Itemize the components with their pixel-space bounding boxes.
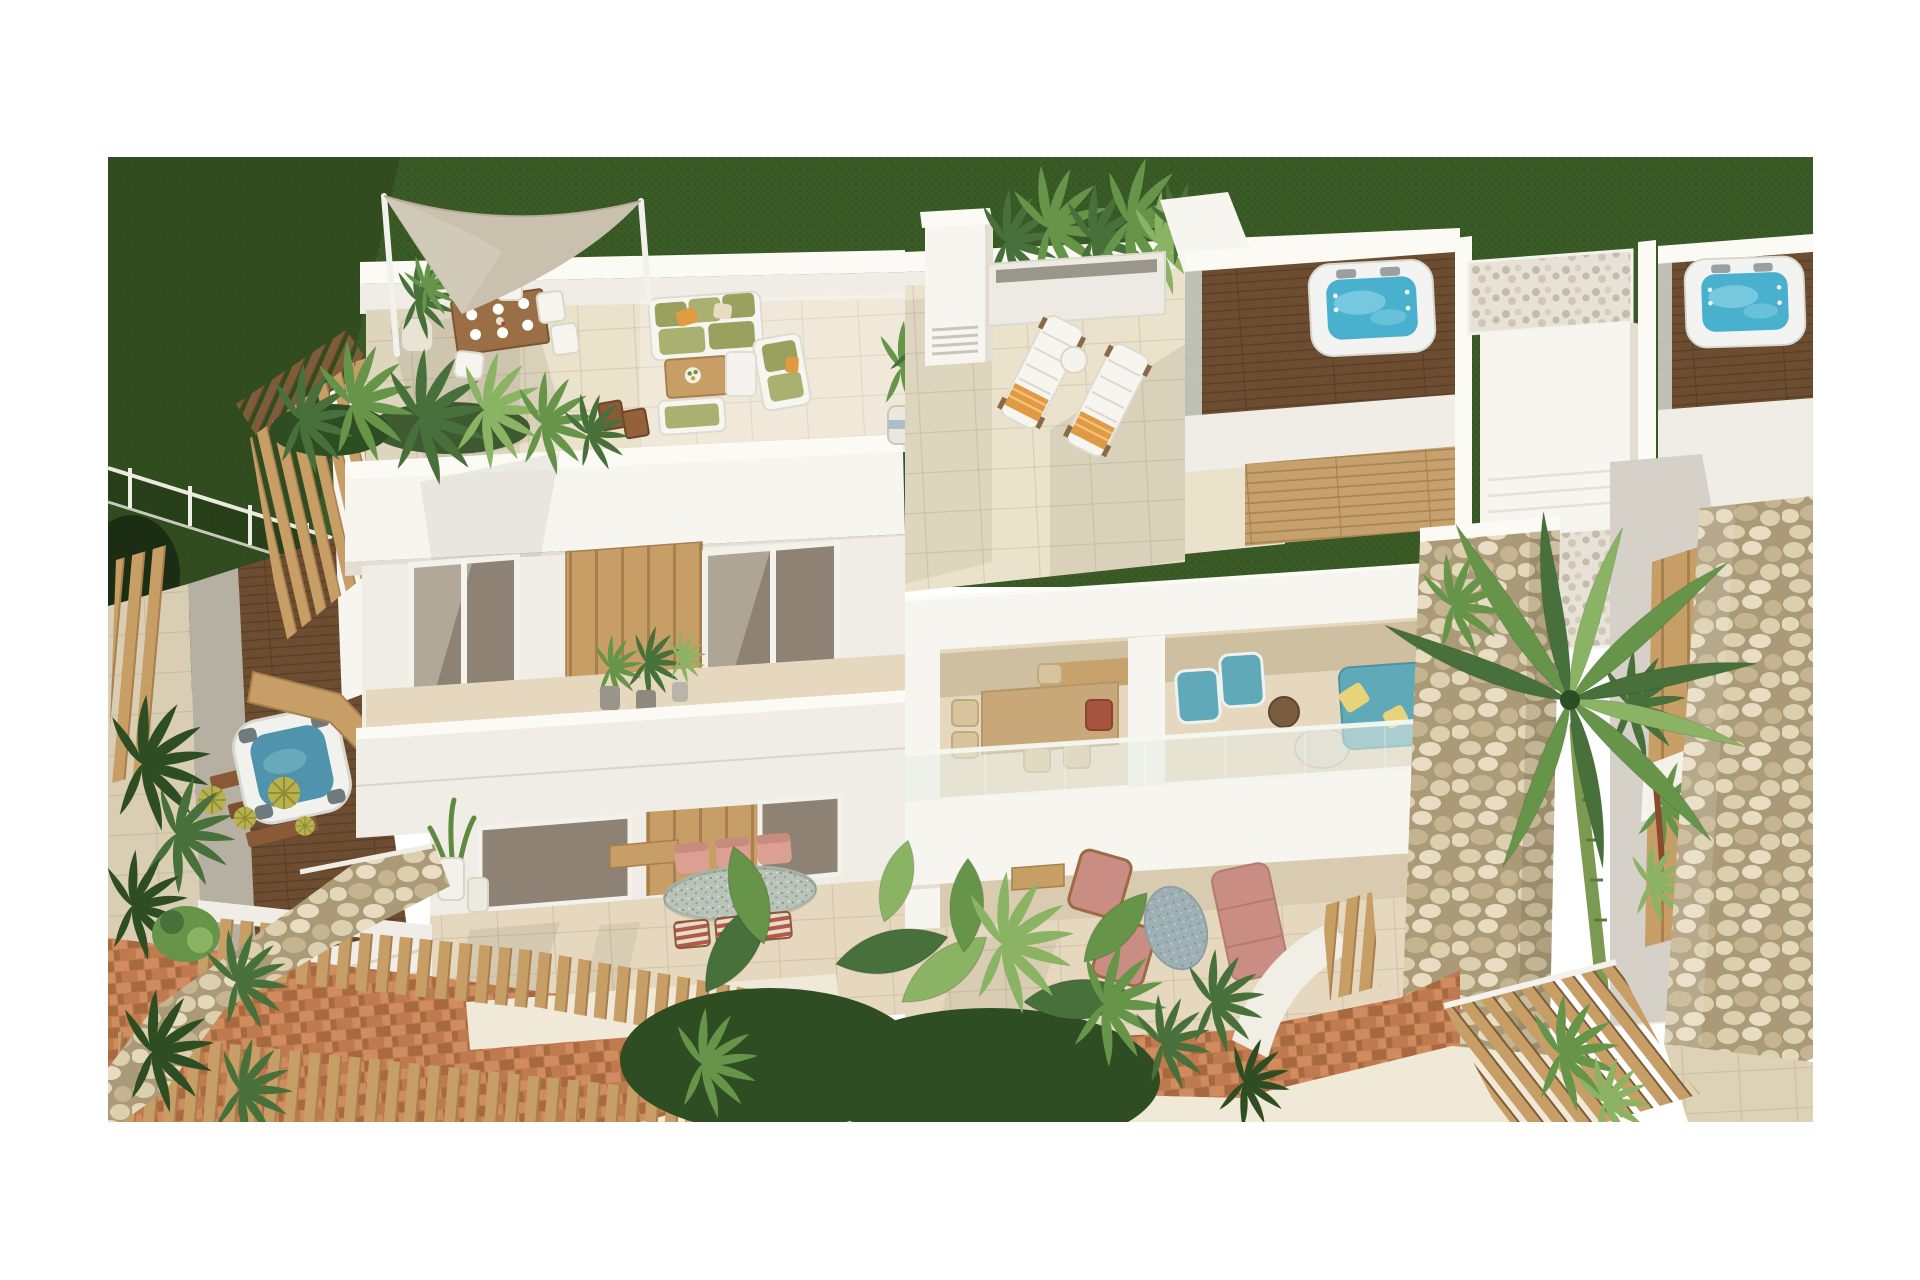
architectural-render (0, 0, 1920, 1280)
render-canvas (0, 0, 1920, 1280)
jacuzzi-a (1308, 259, 1437, 357)
jacuzzi-b (1684, 256, 1806, 348)
window-left (408, 554, 520, 694)
side-table-round (1061, 347, 1087, 373)
chimney (920, 208, 993, 366)
coffee-table (665, 356, 729, 398)
